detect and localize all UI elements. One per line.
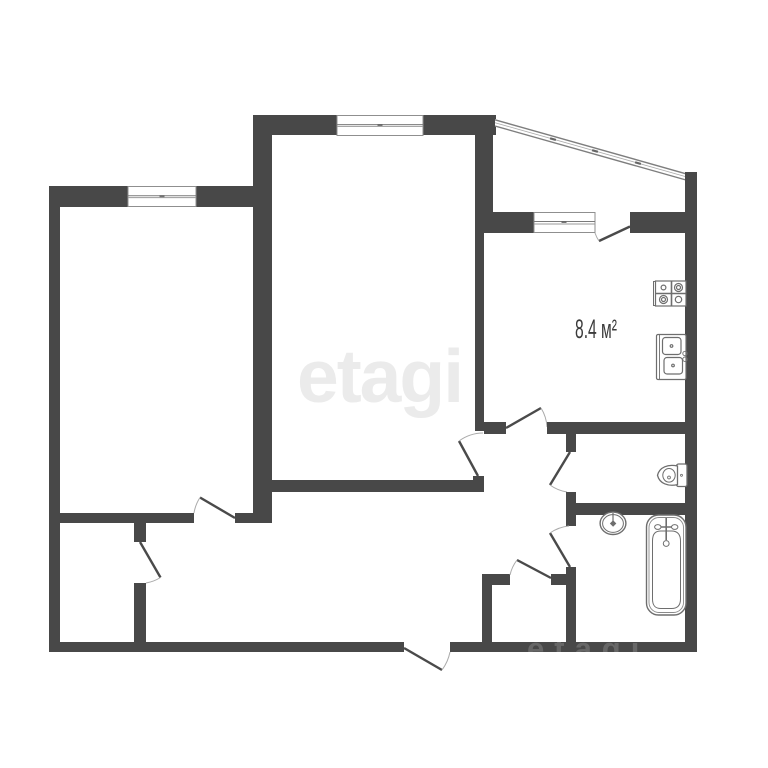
- svg-text:etagi: etagi: [527, 631, 649, 666]
- svg-text:8.4 м²: 8.4 м²: [575, 314, 617, 344]
